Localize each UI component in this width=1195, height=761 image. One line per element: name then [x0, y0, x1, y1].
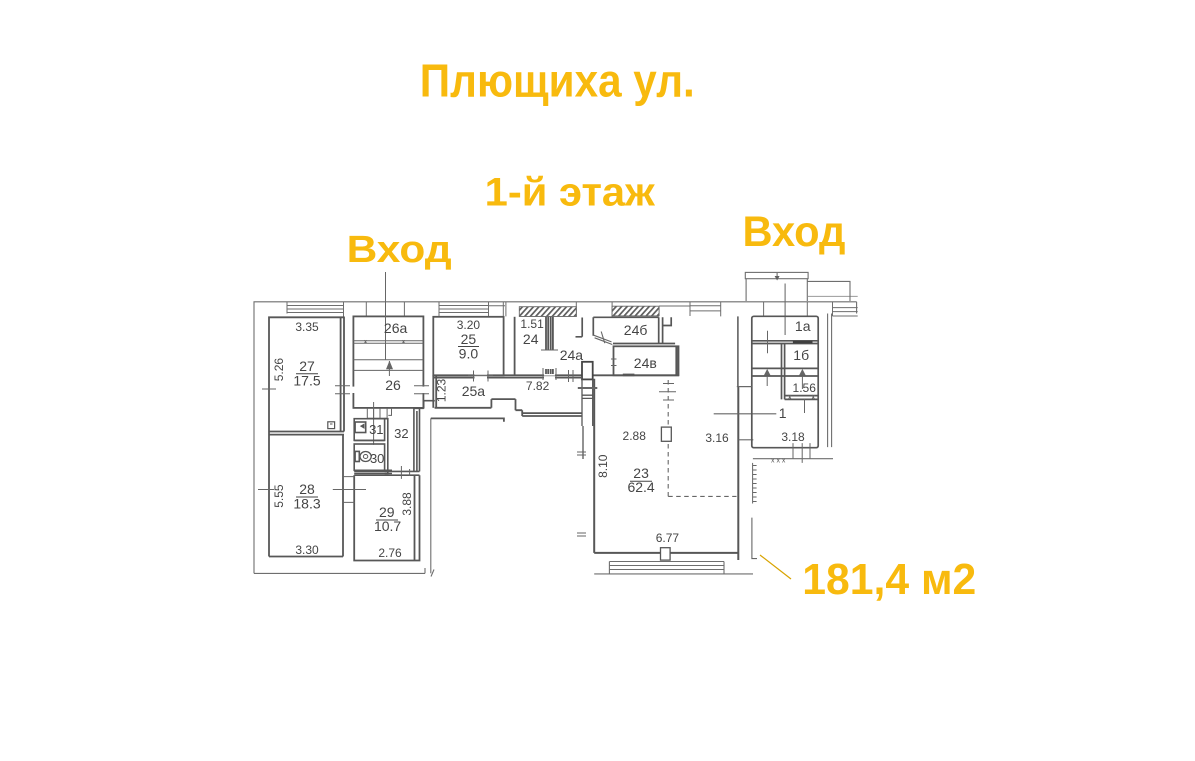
svg-text:24б: 24б	[624, 322, 648, 338]
svg-text:1.23: 1.23	[435, 378, 449, 402]
svg-text:24: 24	[523, 331, 539, 347]
svg-text:3.20: 3.20	[457, 318, 481, 332]
svg-text:1а: 1а	[795, 318, 811, 334]
svg-text:6.77: 6.77	[656, 531, 680, 545]
svg-text:26а: 26а	[384, 320, 408, 336]
svg-text:7.82: 7.82	[526, 379, 550, 393]
svg-text:1.56: 1.56	[793, 381, 817, 395]
svg-text:1б: 1б	[793, 347, 809, 363]
svg-text:181,4 м2: 181,4 м2	[802, 555, 976, 604]
svg-text:30: 30	[370, 451, 384, 466]
svg-text:24а: 24а	[560, 347, 584, 363]
svg-text:Вход: Вход	[743, 208, 846, 256]
svg-text:5.26: 5.26	[272, 358, 286, 382]
svg-text:9.0: 9.0	[459, 346, 479, 362]
svg-text:8.10: 8.10	[596, 454, 610, 478]
svg-text:Плющиха ул.: Плющиха ул.	[420, 55, 695, 107]
svg-text:2.88: 2.88	[623, 429, 647, 443]
svg-text:x x x: x x x	[771, 458, 786, 465]
svg-text:3.18: 3.18	[781, 430, 805, 444]
svg-text:25а: 25а	[462, 383, 486, 399]
svg-text:24в: 24в	[634, 355, 657, 371]
svg-text:1.51: 1.51	[520, 317, 544, 331]
svg-text:1: 1	[779, 405, 787, 421]
svg-text:3.35: 3.35	[295, 320, 319, 334]
svg-text:31: 31	[369, 422, 383, 437]
svg-text:17.5: 17.5	[293, 373, 320, 389]
svg-text:18.3: 18.3	[293, 496, 320, 512]
svg-text:2.76: 2.76	[378, 546, 402, 560]
svg-text:1-й этаж: 1-й этаж	[485, 171, 656, 215]
svg-text:3.30: 3.30	[295, 543, 319, 557]
svg-text:26: 26	[385, 377, 401, 393]
svg-text:Вход: Вход	[347, 229, 452, 271]
svg-text:5.55: 5.55	[272, 484, 286, 508]
svg-text:3.16: 3.16	[705, 431, 729, 445]
svg-text:3.88: 3.88	[400, 492, 414, 516]
svg-text:32: 32	[394, 426, 408, 441]
